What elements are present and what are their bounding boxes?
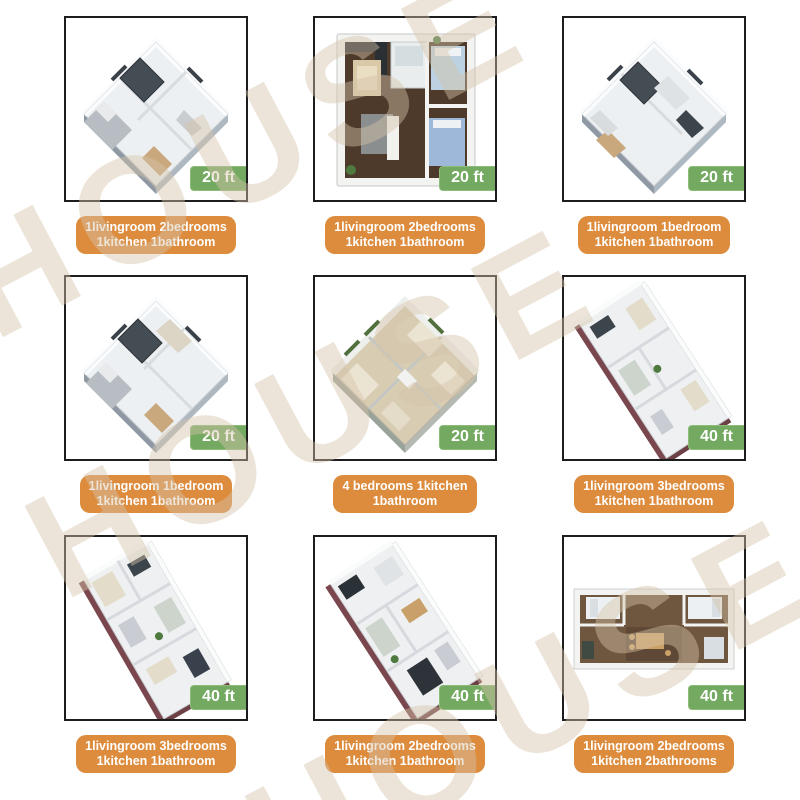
- container-length-badge: 40 ft: [688, 425, 744, 450]
- floorplan-thumbnail-3[interactable]: 20 ft: [562, 16, 746, 202]
- caption-line-2: 1kitchen 2bathrooms: [591, 754, 717, 768]
- plan-caption: 1livingroom 1bedroom 1kitchen 1bathroom: [80, 475, 233, 513]
- caption-line-2: 1kitchen 1bathroom: [97, 494, 216, 508]
- caption-line-1: 1livingroom 2bedrooms: [583, 739, 725, 753]
- plan-card-5: 20 ft 4 bedrooms 1kitchen 1bathroom: [313, 275, 497, 513]
- plan-caption: 1livingroom 3bedrooms 1kitchen 1bathroom: [76, 735, 236, 773]
- floorplan-thumbnail-1[interactable]: 20 ft: [64, 16, 248, 202]
- floorplan-thumbnail-9[interactable]: 40 ft: [562, 535, 746, 721]
- plan-caption: 1livingroom 2bedrooms 1kitchen 1bathroom: [325, 735, 485, 773]
- floorplan-thumbnail-6[interactable]: 40 ft: [562, 275, 746, 461]
- plan-caption: 4 bedrooms 1kitchen 1bathroom: [333, 475, 476, 513]
- caption-line-1: 1livingroom 1bedroom: [587, 220, 722, 234]
- caption-line-2: 1kitchen 1bathroom: [346, 754, 465, 768]
- floorplan-thumbnail-2[interactable]: 20 ft: [313, 16, 497, 202]
- container-length-badge: 20 ft: [439, 425, 495, 450]
- container-length-badge: 40 ft: [688, 685, 744, 710]
- floorplan-thumbnail-5[interactable]: 20 ft: [313, 275, 497, 461]
- plan-card-8: 40 ft 1livingroom 2bedrooms 1kitchen 1ba…: [313, 535, 497, 773]
- plan-card-7: 40 ft 1livingroom 3bedrooms 1kitchen 1ba…: [64, 535, 248, 773]
- plan-card-6: 40 ft 1livingroom 3bedrooms 1kitchen 1ba…: [562, 275, 746, 513]
- plan-card-3: 20 ft 1livingroom 1bedroom 1kitchen 1bat…: [562, 16, 746, 254]
- plan-caption: 1livingroom 2bedrooms 1kitchen 2bathroom…: [574, 735, 734, 773]
- plan-card-4: 20 ft 1livingroom 1bedroom 1kitchen 1bat…: [64, 275, 248, 513]
- caption-line-1: 1livingroom 2bedrooms: [334, 739, 476, 753]
- caption-line-2: 1kitchen 1bathroom: [97, 235, 216, 249]
- floorplan-thumbnail-7[interactable]: 40 ft: [64, 535, 248, 721]
- caption-line-1: 1livingroom 3bedrooms: [583, 479, 725, 493]
- caption-line-2: 1kitchen 1bathroom: [346, 235, 465, 249]
- plan-card-1: 20 ft 1livingroom 2bedrooms 1kitchen 1ba…: [64, 16, 248, 254]
- plan-caption: 1livingroom 2bedrooms 1kitchen 1bathroom: [325, 216, 485, 254]
- plan-caption: 1livingroom 3bedrooms 1kitchen 1bathroom: [574, 475, 734, 513]
- container-length-badge: 20 ft: [439, 166, 495, 191]
- container-length-badge: 20 ft: [688, 166, 744, 191]
- caption-line-1: 1livingroom 2bedrooms: [85, 220, 227, 234]
- container-length-badge: 40 ft: [190, 685, 246, 710]
- caption-line-2: 1bathroom: [373, 494, 438, 508]
- plan-card-2: 20 ft 1livingroom 2bedrooms 1kitchen 1ba…: [313, 16, 497, 254]
- caption-line-1: 1livingroom 2bedrooms: [334, 220, 476, 234]
- caption-line-2: 1kitchen 1bathroom: [595, 235, 714, 249]
- caption-line-2: 1kitchen 1bathroom: [595, 494, 714, 508]
- caption-line-1: 1livingroom 3bedrooms: [85, 739, 227, 753]
- plan-caption: 1livingroom 1bedroom 1kitchen 1bathroom: [578, 216, 731, 254]
- caption-line-1: 4 bedrooms 1kitchen: [342, 479, 467, 493]
- floorplan-thumbnail-4[interactable]: 20 ft: [64, 275, 248, 461]
- container-length-badge: 40 ft: [439, 685, 495, 710]
- caption-line-2: 1kitchen 1bathroom: [97, 754, 216, 768]
- container-length-badge: 20 ft: [190, 166, 246, 191]
- floorplan-thumbnail-8[interactable]: 40 ft: [313, 535, 497, 721]
- plan-caption: 1livingroom 2bedrooms 1kitchen 1bathroom: [76, 216, 236, 254]
- caption-line-1: 1livingroom 1bedroom: [89, 479, 224, 493]
- plan-card-9: 40 ft 1livingroom 2bedrooms 1kitchen 2ba…: [562, 535, 746, 773]
- container-length-badge: 20 ft: [190, 425, 246, 450]
- floorplan-catalog: 20 ft 1livingroom 2bedrooms 1kitchen 1ba…: [0, 0, 800, 800]
